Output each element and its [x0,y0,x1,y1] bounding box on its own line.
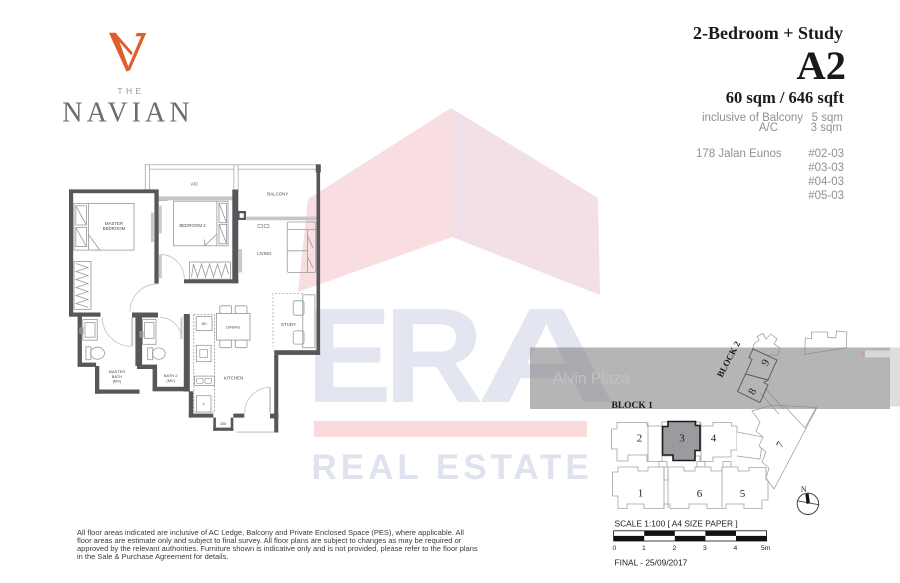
svg-text:178 Jalan Eunos: 178 Jalan Eunos [696,148,782,160]
svg-text:60 sqm / 646 sqft: 60 sqm / 646 sqft [726,88,845,107]
svg-text:2-Bedroom + Study: 2-Bedroom + Study [693,23,843,43]
svg-text:BEDROOM: BEDROOM [103,226,126,231]
svg-text:in the Sale & Purchase Agreeme: in the Sale & Purchase Agreement for det… [77,552,228,561]
svg-text:#03-03: #03-03 [808,162,844,174]
svg-text:#02-03: #02-03 [808,148,844,160]
svg-text:LIVING: LIVING [257,251,272,256]
svg-text:inclusive of Balcony: inclusive of Balcony [702,112,803,124]
svg-text:DINING: DINING [226,325,240,330]
svg-text:3 sqm: 3 sqm [811,122,842,134]
svg-text:SCALE 1:100 [ A4 SIZE PAPER ]: SCALE 1:100 [ A4 SIZE PAPER ] [615,519,738,529]
svg-text:A/C: A/C [191,182,198,187]
svg-text:REAL ESTATE: REAL ESTATE [312,448,593,487]
svg-text:KITCHEN: KITCHEN [224,375,243,380]
svg-text:THE: THE [117,86,144,96]
svg-text:3: 3 [679,433,685,445]
svg-text:WD: WD [201,322,207,326]
svg-text:(MV): (MV) [166,378,175,383]
svg-text:4: 4 [734,545,738,552]
svg-text:R: R [384,279,484,430]
svg-text:1: 1 [642,545,646,552]
svg-text:2: 2 [673,545,677,552]
svg-text:BLOCK 1: BLOCK 1 [612,401,654,411]
svg-text:BEDROOM 2: BEDROOM 2 [179,223,206,228]
svg-text:A2: A2 [797,43,847,88]
svg-text:6: 6 [697,488,703,500]
svg-text:F: F [203,403,206,407]
svg-text:N: N [801,485,807,494]
svg-text:#04-03: #04-03 [808,176,844,188]
svg-text:5: 5 [740,488,746,500]
svg-text:(MV): (MV) [113,379,122,384]
svg-text:4: 4 [711,433,717,445]
svg-text:5m: 5m [761,545,771,552]
svg-text:A/C: A/C [759,122,778,134]
svg-text:Alvin Plaza: Alvin Plaza [553,371,630,388]
svg-text:BALCONY: BALCONY [267,192,288,197]
svg-text:0: 0 [613,545,617,552]
svg-text:STUDY: STUDY [281,322,296,327]
svg-text:3: 3 [703,545,707,552]
svg-text:NAVIAN: NAVIAN [62,98,193,129]
svg-text:#05-03: #05-03 [808,190,844,202]
svg-text:DB: DB [221,421,227,426]
svg-text:2: 2 [637,433,643,445]
svg-text:FINAL - 25/09/2017: FINAL - 25/09/2017 [615,557,688,567]
svg-text:1: 1 [638,488,644,500]
